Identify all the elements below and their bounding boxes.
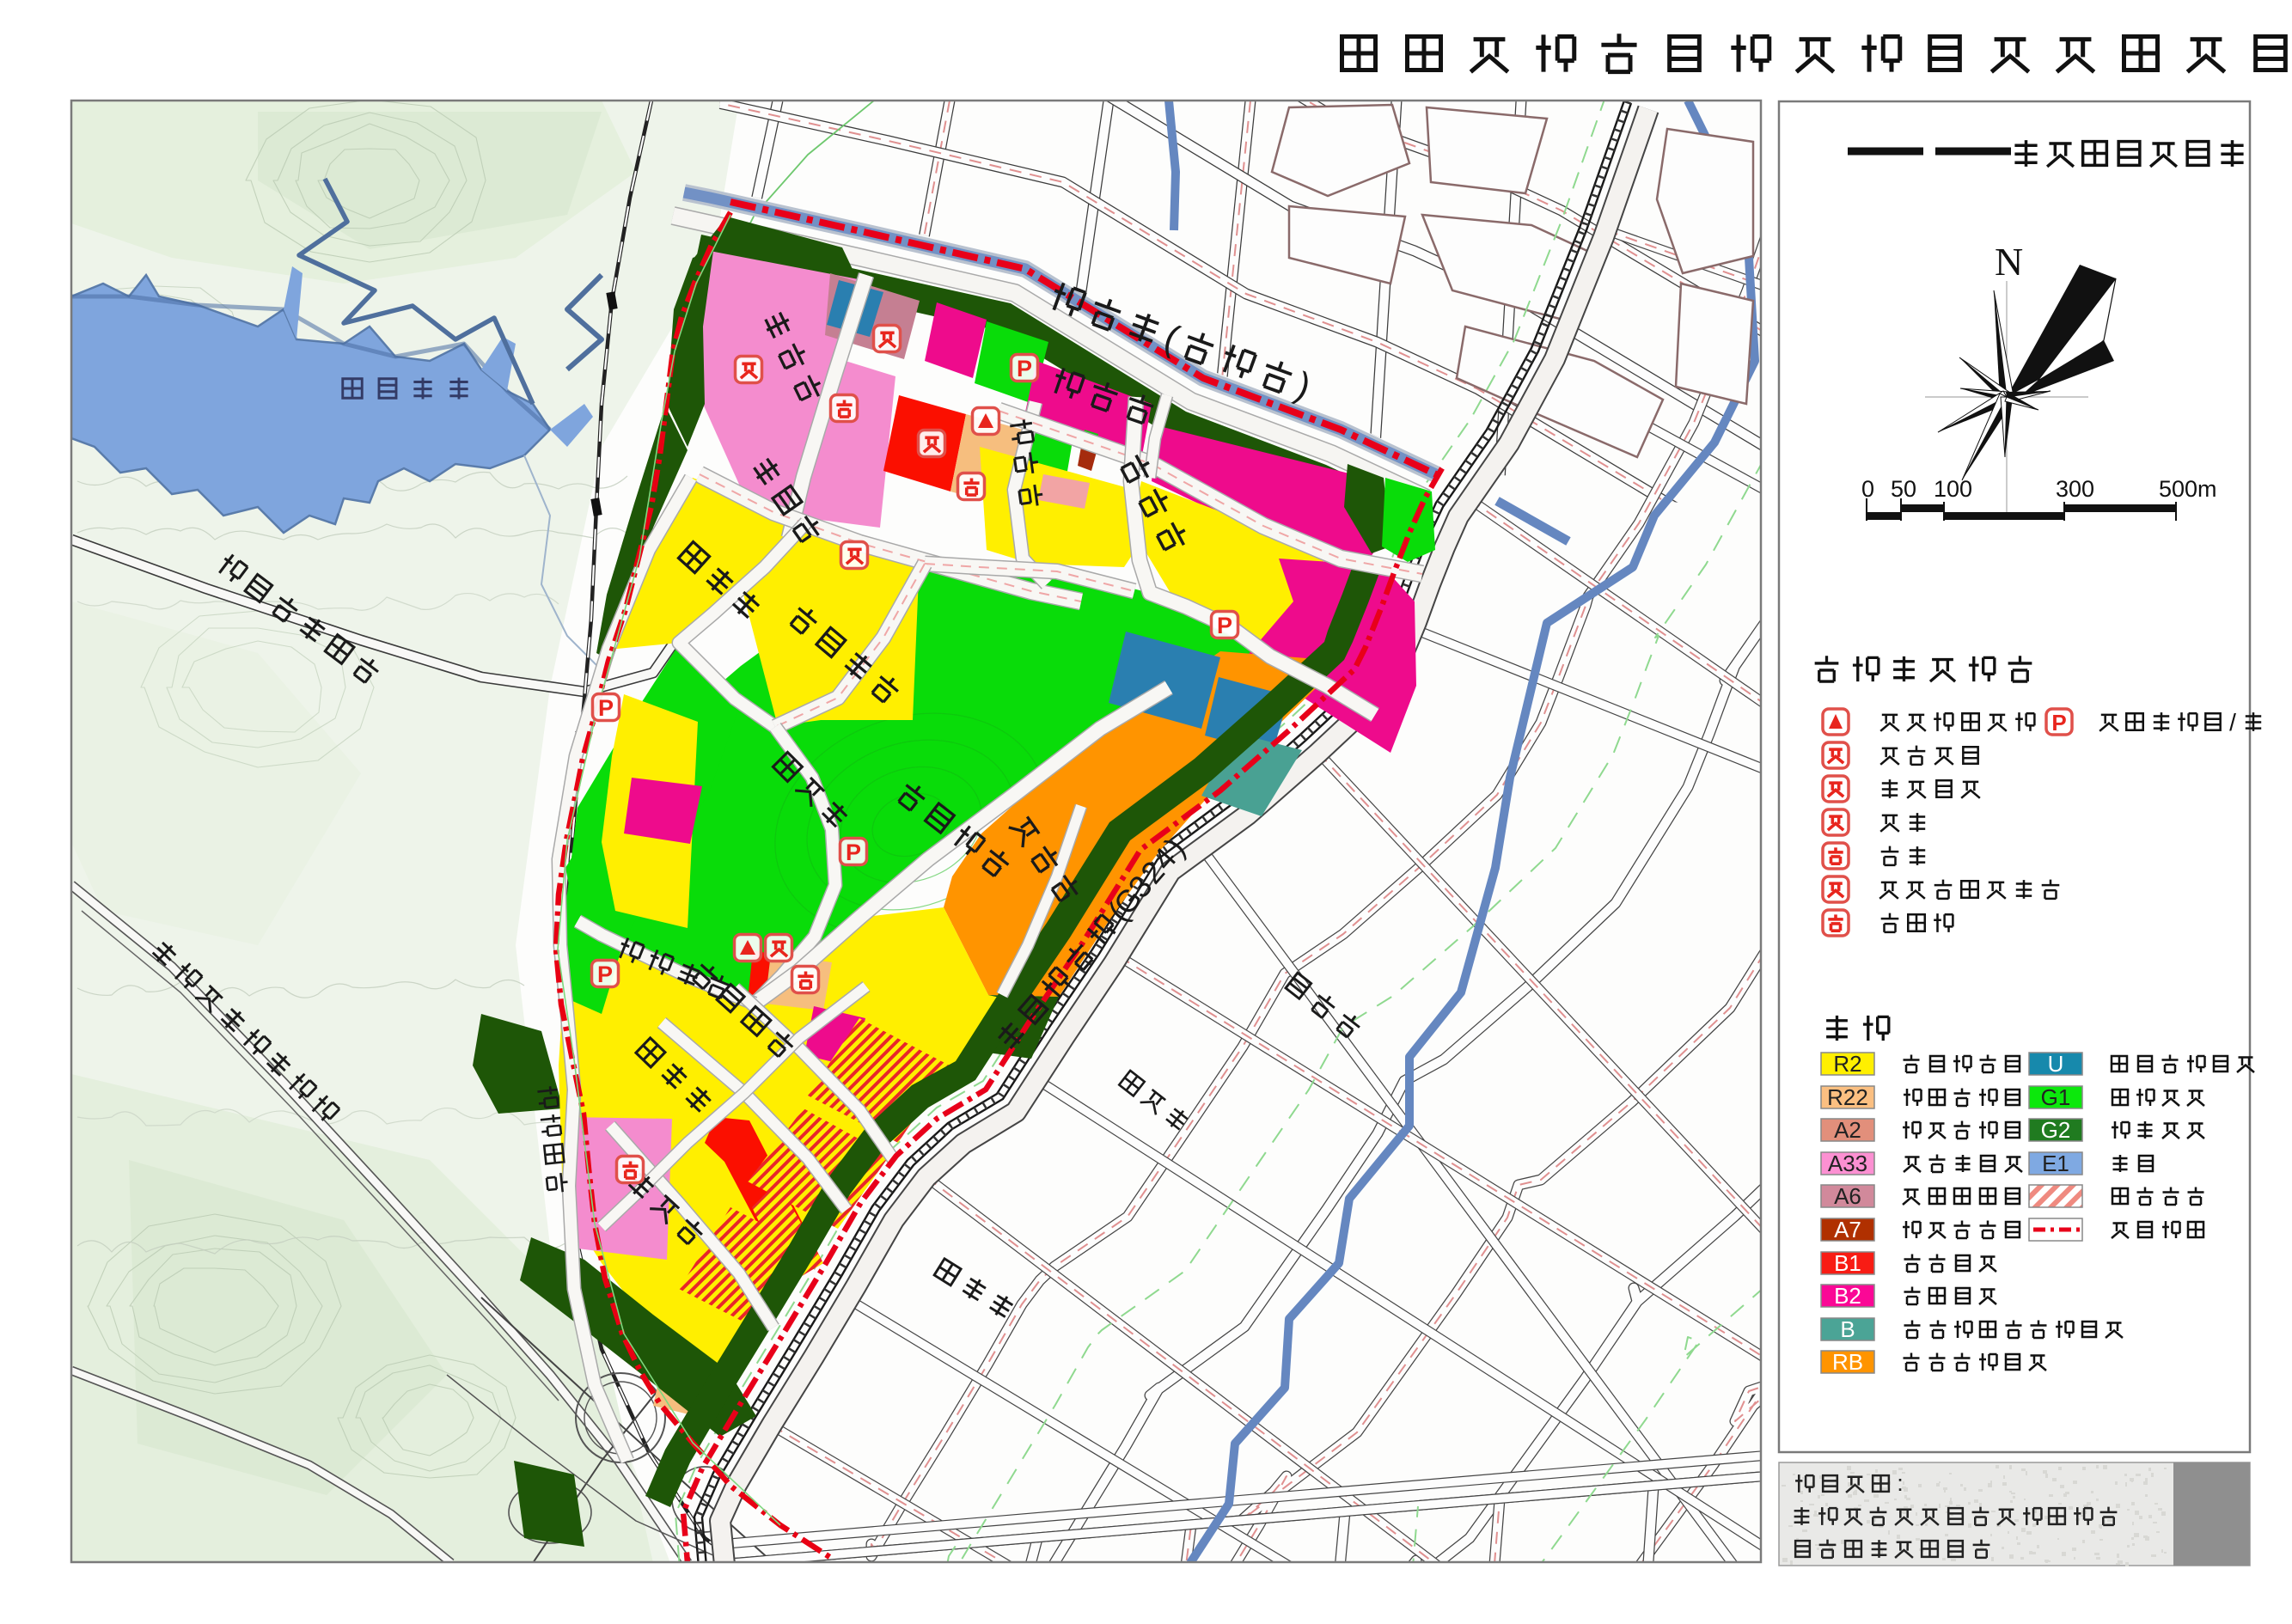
svg-text:P: P xyxy=(2051,710,2066,736)
svg-text:G1: G1 xyxy=(2041,1084,2071,1110)
svg-text:P: P xyxy=(598,695,614,721)
svg-text:B1: B1 xyxy=(1834,1250,1861,1276)
svg-text:300: 300 xyxy=(2056,476,2094,502)
svg-text:P: P xyxy=(846,839,861,865)
svg-text:100: 100 xyxy=(1934,476,1972,502)
svg-text:P: P xyxy=(1217,613,1232,638)
svg-text:U: U xyxy=(2048,1051,2064,1077)
svg-text:A6: A6 xyxy=(1834,1183,1861,1209)
svg-text:B2: B2 xyxy=(1834,1283,1861,1309)
svg-text:B: B xyxy=(1840,1316,1855,1342)
svg-text:A7: A7 xyxy=(1834,1217,1861,1242)
svg-text:50: 50 xyxy=(1891,476,1916,502)
svg-text::: : xyxy=(1897,1470,1904,1496)
svg-text:A2: A2 xyxy=(1834,1117,1861,1143)
svg-text:A33: A33 xyxy=(1828,1151,1867,1176)
svg-text:P: P xyxy=(597,962,613,987)
svg-text:R22: R22 xyxy=(1827,1084,1868,1110)
svg-text:E1: E1 xyxy=(2042,1151,2069,1176)
svg-text:0: 0 xyxy=(1861,476,1874,502)
svg-text:N: N xyxy=(1995,240,2023,284)
svg-text:RB: RB xyxy=(1832,1349,1863,1375)
svg-text:P: P xyxy=(1017,356,1032,382)
svg-text:/: / xyxy=(2229,709,2236,736)
svg-text:500m: 500m xyxy=(2159,476,2217,502)
svg-text:R2: R2 xyxy=(1833,1051,1861,1077)
svg-text:G2: G2 xyxy=(2041,1117,2071,1143)
